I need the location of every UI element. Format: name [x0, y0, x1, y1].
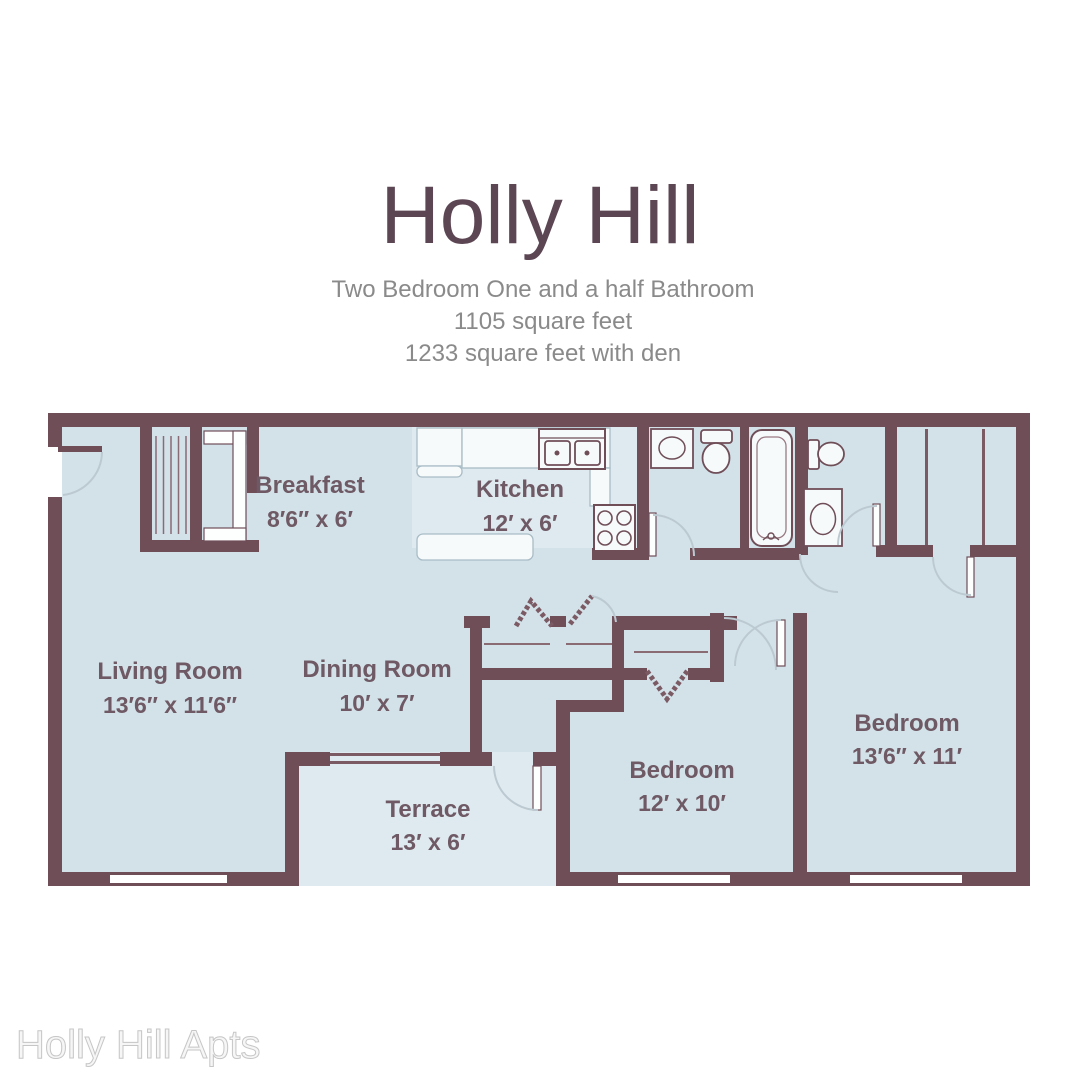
closet-divider-line-2 — [982, 429, 985, 545]
watermark: Holly Hill Apts — [16, 1023, 261, 1067]
wall-closet-tr-bottom-a — [885, 545, 933, 557]
wall-dining-east — [470, 628, 482, 752]
terrace-railing-line-1 — [330, 753, 440, 756]
entry-door-leaf — [58, 446, 102, 452]
room-label-terrace: Terrace — [386, 796, 471, 823]
wall-hall-closet-east — [612, 616, 624, 712]
wall-closet-tr-bottom-b — [970, 545, 1016, 557]
wall-bedroom1-closet-bottom-b — [688, 668, 710, 680]
floor-plan-page: Holly Hill Two Bedroom One and a half Ba… — [0, 0, 1080, 1080]
room-dimensions-living-room: 13′6″ x 11′6″ — [103, 692, 237, 718]
stove-icon — [594, 505, 635, 551]
powder-toilet-icon — [701, 430, 732, 473]
wall-outer-left-upper — [48, 413, 62, 447]
kitchen-sink-icon — [539, 429, 605, 469]
closet-door-leaf — [967, 557, 974, 597]
vanity-sink-icon — [804, 489, 842, 546]
wall-entry-closet-bottom — [140, 540, 259, 552]
wall-terrace-post-2 — [440, 752, 492, 766]
wall-bath2-right — [885, 427, 897, 553]
room-label-breakfast: Breakfast — [255, 472, 364, 499]
wall-kitchen-right — [637, 427, 649, 560]
bathtub-icon — [751, 430, 792, 546]
bath-door-leaf — [873, 504, 880, 546]
kitchen-peninsula-counter — [417, 534, 533, 560]
wall-hall-pier — [710, 613, 724, 682]
bedroom2-door-leaf — [777, 620, 785, 666]
wall-outer-right — [1016, 413, 1030, 886]
closet-divider-line-1 — [925, 429, 928, 545]
room-dimensions-bedroom-2: 13′6″ x 11′ — [852, 743, 963, 769]
terrace-door-leaf — [533, 766, 541, 810]
subtitle-line-2: 1105 square feet — [454, 308, 633, 335]
wall-bedroom1-closet-bottom-a — [624, 668, 647, 680]
window-bedroom-2 — [850, 872, 962, 886]
wall-outer-bottom-a — [48, 872, 110, 886]
wall-outer-left-lower — [48, 497, 62, 886]
room-label-dining-room: Dining Room — [302, 656, 451, 683]
refrigerator-icon — [417, 428, 462, 477]
room-dimensions-kitchen: 12′ x 6′ — [483, 510, 558, 536]
wall-powder-right — [740, 427, 749, 560]
page-title: Holly Hill — [381, 170, 700, 261]
subtitle-line-1: Two Bedroom One and a half Bathroom — [332, 276, 755, 303]
wall-terrace-post-3 — [533, 752, 570, 766]
wall-outer-bottom-e — [962, 872, 1030, 886]
room-dimensions-terrace: 13′ x 6′ — [391, 829, 466, 855]
room-label-living-room: Living Room — [97, 658, 242, 685]
powder-sink-icon — [651, 429, 693, 468]
wall-terrace-west — [285, 752, 299, 886]
terrace-railing-line-2 — [330, 761, 440, 764]
floor-plan-canvas: Holly Hill Two Bedroom One and a half Ba… — [0, 0, 1080, 1080]
wall-outer-top — [48, 413, 1030, 427]
wall-outer-bottom-b — [227, 872, 290, 886]
room-dimensions-dining-room: 10′ x 7′ — [340, 690, 415, 716]
wall-entry-closet-2 — [190, 427, 202, 540]
wall-bedrooms-divider — [793, 613, 807, 872]
wall-outer-bottom-d — [730, 872, 850, 886]
room-dimensions-bedroom-1: 12′ x 10′ — [638, 790, 726, 816]
room-label-bedroom-2: Bedroom — [854, 710, 959, 737]
room-label-kitchen: Kitchen — [476, 476, 564, 503]
wall-entry-closet-1 — [140, 427, 152, 540]
wall-hall-closet-bottom — [472, 668, 612, 680]
window-living-room — [110, 872, 227, 886]
kitchen-counter-side — [590, 468, 610, 506]
subtitle-line-3: 1233 square feet with den — [405, 340, 681, 367]
powder-door-leaf — [649, 513, 656, 556]
wall-dining-cap — [464, 616, 490, 628]
room-dimensions-breakfast: 8′6″ x 6′ — [267, 506, 353, 532]
window-bedroom-1 — [618, 872, 730, 886]
wall-bedroom1-west — [556, 700, 570, 886]
header: Holly Hill Two Bedroom One and a half Ba… — [332, 170, 755, 367]
room-label-bedroom-1: Bedroom — [629, 757, 734, 784]
